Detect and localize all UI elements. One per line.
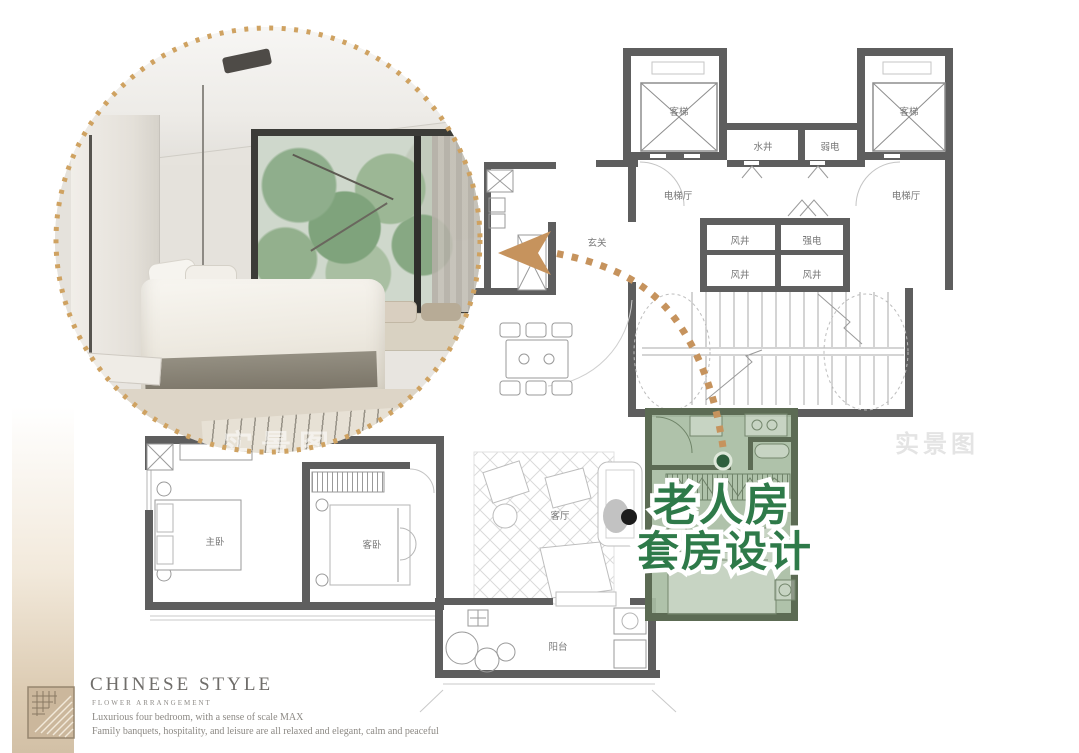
room-label-living-room: 客厅: [550, 510, 570, 522]
room-label-air-shaft-bl: 风井: [730, 269, 749, 281]
photo-inset: 实景图: [51, 23, 485, 457]
brand-subtitle: FLOWER ARRANGEMENT: [92, 699, 212, 707]
callout-line-1: 老人房: [653, 481, 791, 530]
room-label-air-shaft-top: 风井: [730, 235, 749, 247]
suite-callout: 老人房 套房设计: [637, 481, 813, 575]
balcony: 阳台: [420, 598, 676, 712]
shaft-block: [700, 200, 850, 292]
room-label-balcony: 阳台: [548, 641, 567, 653]
room-label-guest-bedroom: 客卧: [362, 539, 382, 551]
room-label-lobby-left: 电梯厅: [664, 190, 693, 202]
room-label-master-bedroom: 主卧: [205, 536, 225, 548]
photo-dotted-ring: [51, 23, 485, 457]
brand-tagline-2: Family banquets, hospitality, and leisur…: [92, 726, 439, 737]
room-label-weak-electric: 弱电: [820, 141, 840, 153]
plan-watermark: 实景图: [895, 430, 979, 458]
living-room: 客厅: [474, 452, 642, 606]
room-label-foyer: 玄关: [587, 237, 607, 249]
brand-tagline-1: Luxurious four bedroom, with a sense of …: [92, 712, 303, 723]
callout-line-2: 套房设计: [637, 528, 813, 575]
room-label-air-shaft-br: 风井: [802, 269, 821, 281]
room-label-strong-electric: 强电: [802, 235, 822, 247]
brand-title: CHINESE STYLE: [90, 674, 273, 696]
room-label-elevator-right: 客梯: [899, 106, 919, 118]
stairwell: [628, 282, 913, 417]
presentation-slide: 客梯 客梯 水井 弱电 电梯厅 电梯厅 风井 强电 风井 风井: [0, 0, 1079, 753]
room-label-water-shaft: 水井: [753, 141, 772, 153]
bedrooms: 主卧 客卧: [145, 436, 444, 620]
person-figure: [621, 509, 637, 525]
room-label-elevator-left: 客梯: [669, 106, 689, 118]
room-label-lobby-right: 电梯厅: [892, 190, 921, 202]
brand-logo: [27, 686, 75, 739]
